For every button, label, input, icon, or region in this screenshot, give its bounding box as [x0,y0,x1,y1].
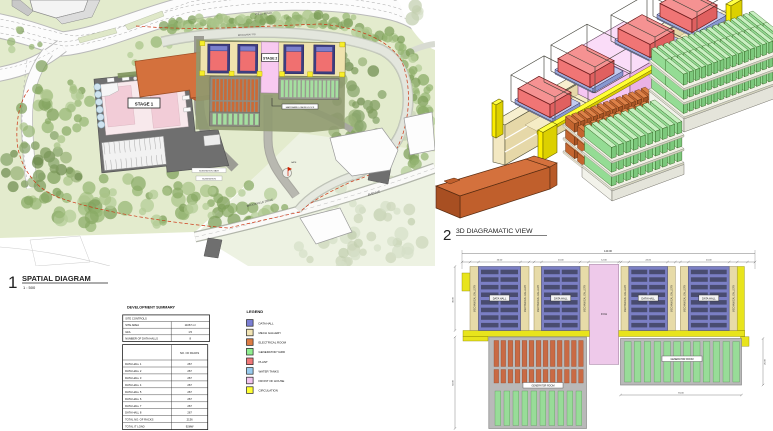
svg-text:MECHANICAL GALLERY: MECHANICAL GALLERY [473,284,476,312]
svg-text:FRONT OF HOUSE: FRONT OF HOUSE [259,379,285,383]
svg-text:2: 2 [443,227,451,244]
svg-text:267: 267 [187,390,192,394]
svg-text:1: 1 [8,273,17,292]
svg-text:MECHANICAL GALLERY: MECHANICAL GALLERY [624,284,627,312]
svg-text:STAGE 2: STAGE 2 [263,56,277,60]
svg-text:DATA HALL 5: DATA HALL 5 [125,390,142,394]
svg-text:267: 267 [187,404,192,408]
svg-text:12.00: 12.00 [601,260,607,262]
svg-text:DATA HALL: DATA HALL [493,297,507,301]
svg-text:267: 267 [187,411,192,415]
svg-text:GATE: GATE [291,161,297,164]
svg-text:24.00: 24.00 [497,260,503,262]
svg-text:MECHANICAL GALLERY: MECHANICAL GALLERY [537,284,540,312]
svg-text:25.00: 25.00 [765,358,767,364]
svg-text:24.00: 24.00 [645,260,651,262]
svg-text:267: 267 [187,362,192,366]
svg-text:50.00: 50.00 [453,379,455,385]
svg-text:81.00: 81.00 [678,393,684,395]
svg-text:DATA HALL: DATA HALL [554,297,568,301]
svg-text:DATA HALL: DATA HALL [702,297,716,301]
svg-text:DATA HALL 6: DATA HALL 6 [125,397,142,401]
svg-text:PLANT: PLANT [259,360,269,364]
svg-text:140.00: 140.00 [604,249,612,253]
svg-text:ELECTRICAL ROOM: ELECTRICAL ROOM [259,341,287,345]
svg-text:267: 267 [187,397,192,401]
svg-text:GENERATOR ROOM: GENERATOR ROOM [531,385,554,388]
svg-text:DATA HALL: DATA HALL [641,297,655,301]
svg-text:92MW: 92MW [186,425,194,429]
svg-text:DATA HALL 7: DATA HALL 7 [125,404,142,408]
svg-text:DATA HALL 2: DATA HALL 2 [125,369,142,373]
svg-text:11067 m²: 11067 m² [185,323,196,327]
svg-text:MECHANICAL GALLERY: MECHANICAL GALLERY [732,284,735,312]
svg-text:1 : 500: 1 : 500 [23,285,36,290]
svg-text:MECH GALLERY: MECH GALLERY [259,331,282,335]
svg-text:SITE AREA: SITE AREA [125,323,139,327]
svg-text:WATER TANKS: WATER TANKS [259,369,279,373]
svg-text:NO. OF RACKS: NO. OF RACKS [180,351,199,355]
svg-text:24.00: 24.00 [706,260,712,262]
svg-text:HARDWARE LOADING DOCK: HARDWARE LOADING DOCK [286,106,315,109]
svg-text:LEGEND: LEGEND [247,309,264,314]
svg-text:1:5: 1:5 [188,330,192,334]
svg-text:DATA HALL 8: DATA HALL 8 [125,411,142,415]
svg-text:267: 267 [187,376,192,380]
svg-text:DATA HALL 3: DATA HALL 3 [125,376,142,380]
svg-text:GENERATOR YARD: GENERATOR YARD [259,350,286,354]
svg-text:DATA HALL: DATA HALL [259,321,275,325]
svg-text:SUBSTATION: SUBSTATION [202,178,216,181]
svg-text:SUBSTATION GATE: SUBSTATION GATE [199,170,220,173]
svg-text:DATA HALL 1: DATA HALL 1 [125,362,142,366]
svg-text:TOTAL IT LOAD: TOTAL IT LOAD [125,425,145,429]
svg-text:STAGE 1: STAGE 1 [135,101,154,106]
svg-text:267: 267 [187,383,192,387]
svg-text:DATA HALL 4: DATA HALL 4 [125,383,142,387]
svg-text:NUMBER OF DATA HALLS: NUMBER OF DATA HALLS [125,337,158,341]
svg-text:SITE CONTROLS: SITE CONTROLS [125,317,147,321]
svg-text:DEVELOPMENT SUMMARY: DEVELOPMENT SUMMARY [127,306,176,310]
svg-text:TOTAL NO. OF RACKS: TOTAL NO. OF RACKS [125,418,154,422]
svg-text:GENERATOR ROOM: GENERATOR ROOM [670,358,693,361]
svg-text:267: 267 [187,369,192,373]
svg-text:MECHANICAL GALLERY: MECHANICAL GALLERY [524,284,527,312]
svg-text:FOH: FOH [601,312,607,316]
svg-text:MECHANICAL GALLERY: MECHANICAL GALLERY [583,284,586,312]
svg-text:2136: 2136 [187,418,193,422]
svg-text:CIRCULATION: CIRCULATION [259,389,278,393]
svg-text:SPATIAL DIAGRAM: SPATIAL DIAGRAM [22,274,91,283]
svg-text:3D DIAGRAMATIC VIEW: 3D DIAGRAMATIC VIEW [456,228,533,235]
svg-text:36.00: 36.00 [453,296,455,302]
svg-text:24.00: 24.00 [558,260,564,262]
svg-text:MECHANICAL GALLERY: MECHANICAL GALLERY [684,284,687,312]
svg-text:MECHANICAL GALLERY: MECHANICAL GALLERY [671,284,674,312]
svg-text:GFA: GFA [125,330,131,334]
